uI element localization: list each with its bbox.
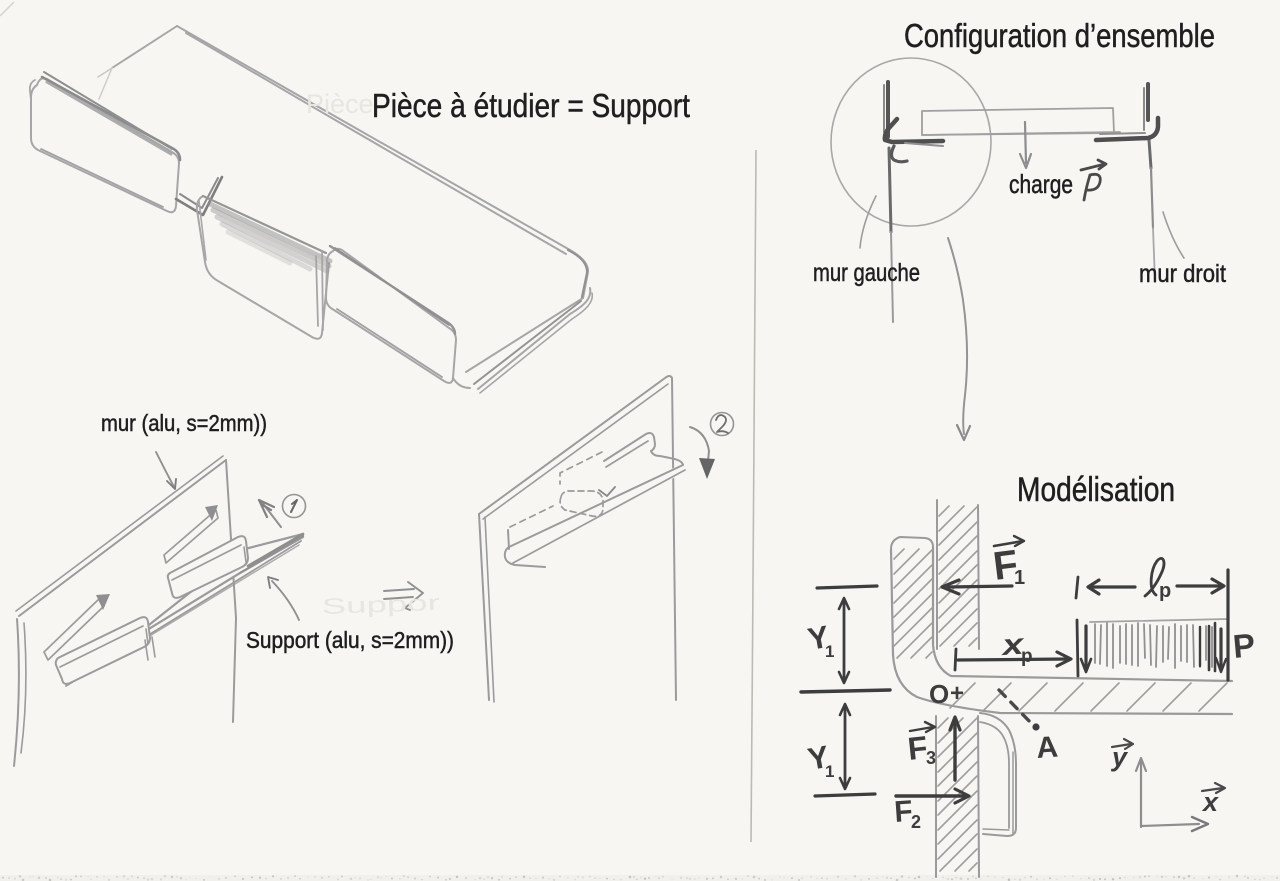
svg-text:O: O — [929, 679, 949, 709]
svg-text:x: x — [1201, 787, 1219, 817]
svg-text:P: P — [1231, 626, 1256, 665]
svg-text:Configuration d’ensemble: Configuration d’ensemble — [904, 17, 1215, 54]
svg-text:Support (alu, s=2mm)): Support (alu, s=2mm)) — [246, 627, 454, 653]
svg-text:1: 1 — [825, 762, 834, 781]
svg-text:p: p — [1159, 580, 1171, 602]
svg-text:3: 3 — [926, 748, 936, 768]
svg-text:mur (alu, s=2mm)): mur (alu, s=2mm)) — [101, 410, 267, 436]
svg-text:1: 1 — [825, 642, 834, 661]
svg-text:Suppor: Suppor — [321, 590, 440, 619]
svg-text:+: + — [950, 680, 964, 707]
svg-text:mur gauche: mur gauche — [813, 259, 920, 287]
svg-text:mur droit: mur droit — [1139, 260, 1226, 288]
svg-text:charge: charge — [1009, 169, 1073, 199]
svg-text:2: 2 — [911, 812, 921, 832]
svg-text:Pièce: Pièce — [306, 89, 374, 119]
svg-text:1: 1 — [1014, 567, 1025, 589]
svg-text:Pièce à étudier = Support: Pièce à étudier = Support — [372, 87, 690, 124]
svg-text:A: A — [1035, 731, 1059, 765]
svg-text:p: p — [1021, 646, 1033, 667]
svg-text:y: y — [1110, 742, 1129, 772]
svg-text:Modélisation: Modélisation — [1017, 471, 1175, 509]
